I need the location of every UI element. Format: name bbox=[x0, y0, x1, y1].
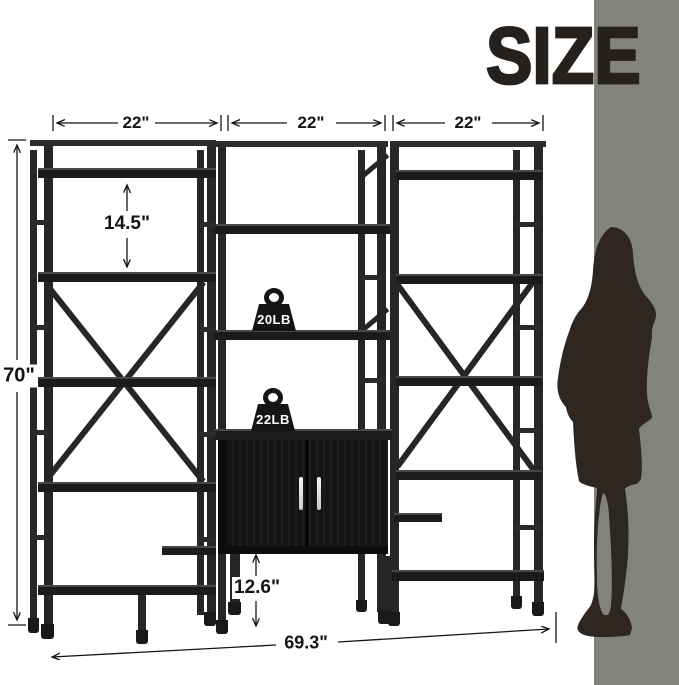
dim-width-middle: 22" bbox=[296, 113, 327, 133]
dim-bottom-clearance: 12.6" bbox=[232, 577, 282, 599]
dimension-lines bbox=[0, 0, 679, 685]
dim-shelf-spacing: 14.5" bbox=[102, 213, 152, 235]
dim-width-left: 22" bbox=[121, 113, 152, 133]
product-size-diagram: SIZE 20LB 22LB bbox=[0, 0, 679, 685]
dim-overall-height: 70" bbox=[1, 365, 37, 388]
dim-overall-width: 69.3" bbox=[282, 633, 330, 654]
dim-width-right: 22" bbox=[453, 113, 484, 133]
